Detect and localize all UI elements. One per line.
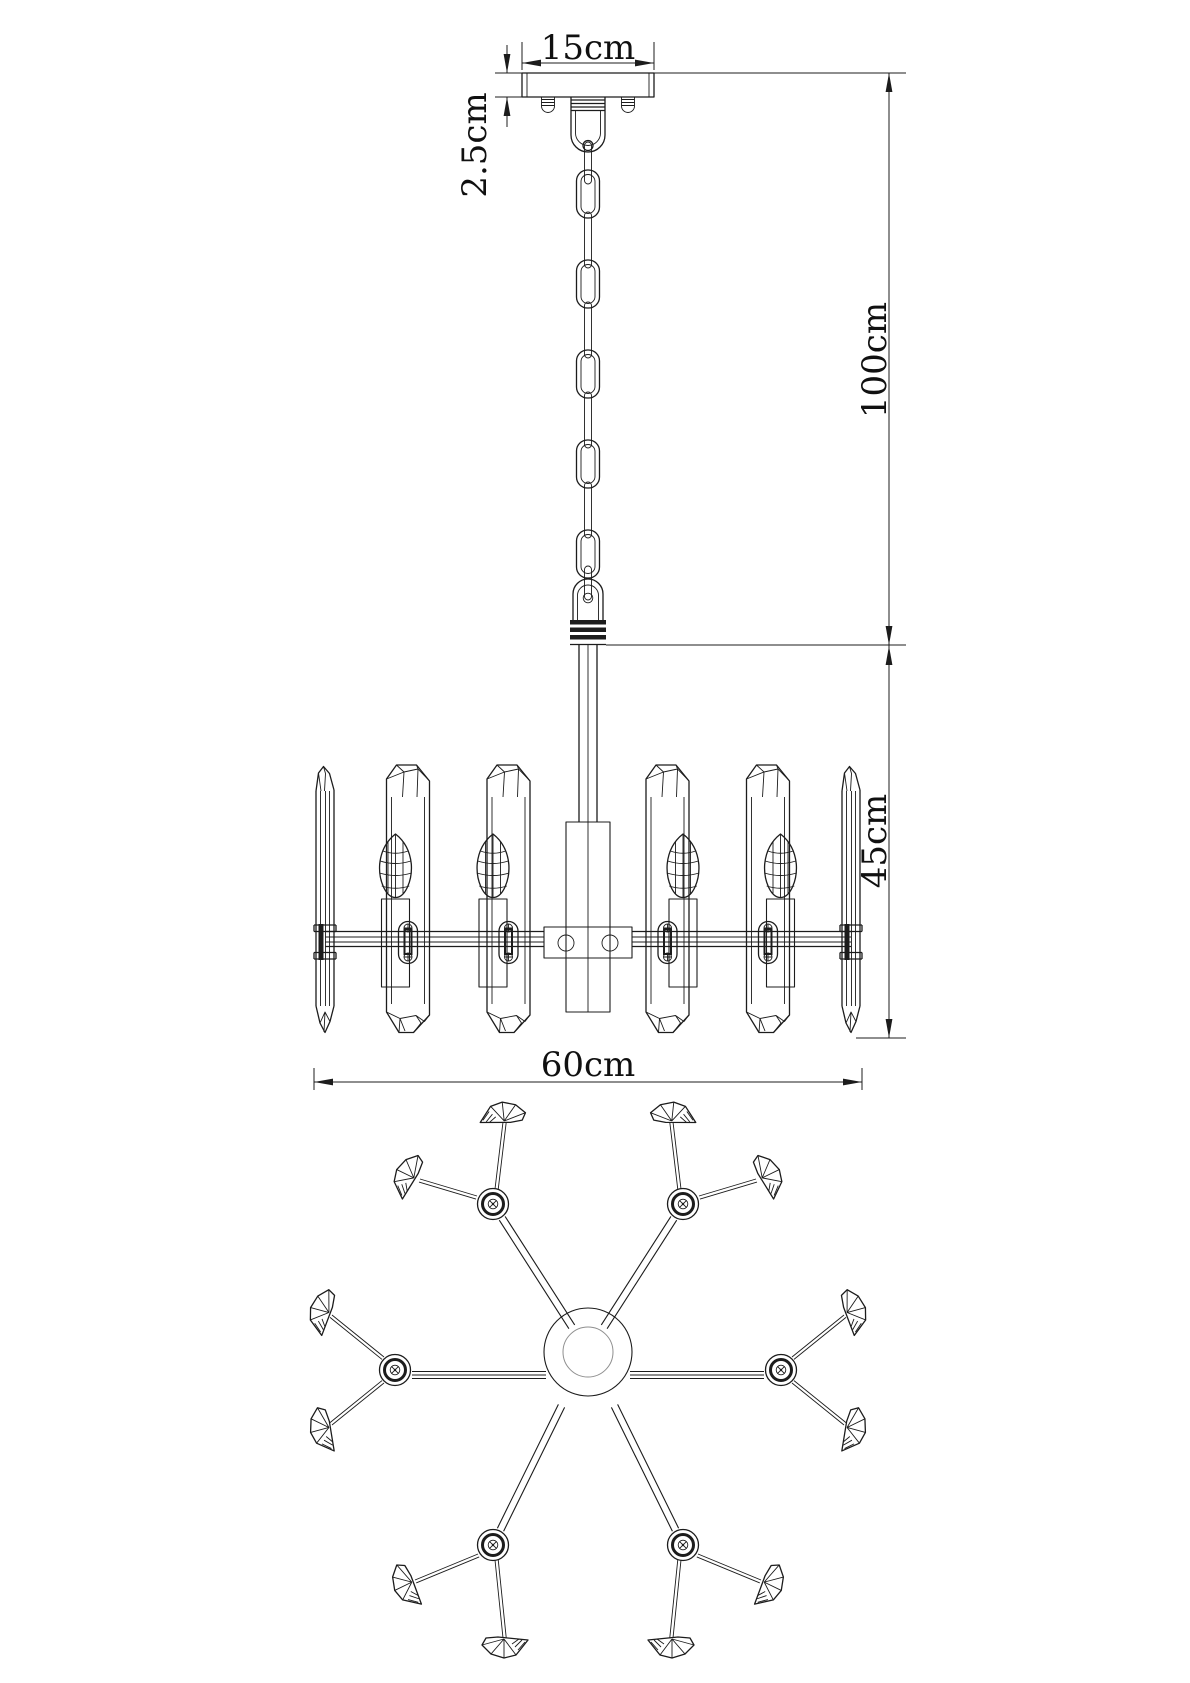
plan-crystal — [482, 1637, 528, 1658]
arm-socket — [478, 1189, 509, 1220]
dim-label-15cm: 15cm — [541, 28, 636, 68]
suspension-chain — [577, 142, 600, 600]
canopy-screw-left — [542, 97, 555, 113]
plan-crystal — [478, 1100, 526, 1126]
arm-socket — [380, 1355, 411, 1386]
plan-crystal — [305, 1406, 337, 1456]
plan-crystal — [386, 1150, 425, 1201]
candle-bulb — [477, 834, 509, 987]
dimension-canopy-height: 2.5cm — [455, 45, 510, 198]
candle-bulb — [667, 834, 699, 987]
top-connector — [571, 97, 605, 152]
elevation-view: 15cm 2.5cm 100cm 45cm 60cm — [314, 28, 906, 1090]
dim-label-100cm: 100cm — [855, 302, 895, 418]
dim-label-60cm: 60cm — [541, 1045, 636, 1085]
dim-label-2-5cm: 2.5cm — [455, 92, 495, 197]
arm-socket — [668, 1530, 699, 1561]
plan-crystal — [650, 1100, 698, 1126]
technical-drawing-canvas: 15cm 2.5cm 100cm 45cm 60cm — [0, 0, 1190, 1683]
plan-crystal — [751, 1150, 790, 1201]
dim-label-45cm: 45cm — [855, 794, 895, 889]
center-stem — [544, 645, 632, 1012]
plan-crystal — [648, 1637, 694, 1658]
crystal-panel-edge — [316, 767, 334, 1033]
arm-socket — [766, 1355, 797, 1386]
arm-bracket — [759, 922, 778, 964]
plan-arms — [412, 1216, 764, 1531]
stem-connector — [570, 579, 606, 645]
plan-crystal — [385, 1561, 424, 1612]
arm-socket — [668, 1189, 699, 1220]
plan-crystal — [839, 1286, 871, 1336]
arm-bracket — [499, 922, 518, 964]
plan-crystal — [752, 1561, 791, 1612]
arm-bracket — [658, 922, 677, 964]
plan-view — [304, 1100, 871, 1658]
plan-center-hub — [544, 1308, 632, 1396]
plan-crystal — [839, 1406, 871, 1456]
chandelier-dimension-drawing: 15cm 2.5cm 100cm 45cm 60cm — [0, 0, 1190, 1683]
plan-crystal — [304, 1286, 336, 1336]
dimension-body-width: 60cm — [314, 1045, 862, 1090]
arm-socket — [478, 1530, 509, 1561]
arm-bracket — [399, 922, 418, 964]
dimension-canopy-width: 15cm — [522, 28, 654, 70]
canopy-screw-right — [622, 97, 635, 113]
